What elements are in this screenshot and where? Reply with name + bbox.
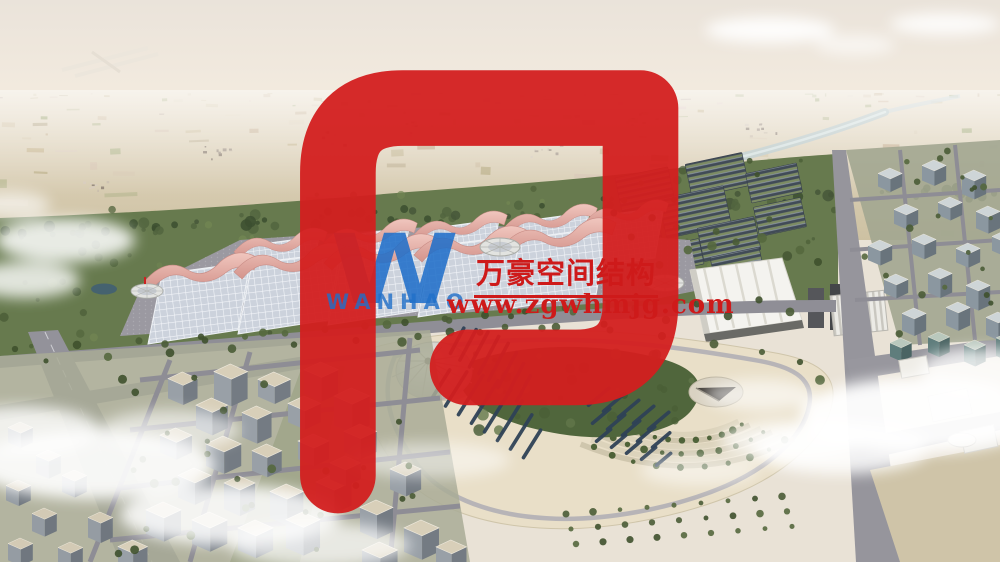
round-pavilion-west xyxy=(131,284,163,298)
pond xyxy=(91,284,117,295)
aerial-rendering: W WANHAO 万豪空间结构 www.zgwhmjg.com xyxy=(0,0,1000,562)
scene-svg xyxy=(0,0,1000,562)
round-pavilion-east xyxy=(646,274,684,291)
round-pavilion-center xyxy=(480,238,520,256)
